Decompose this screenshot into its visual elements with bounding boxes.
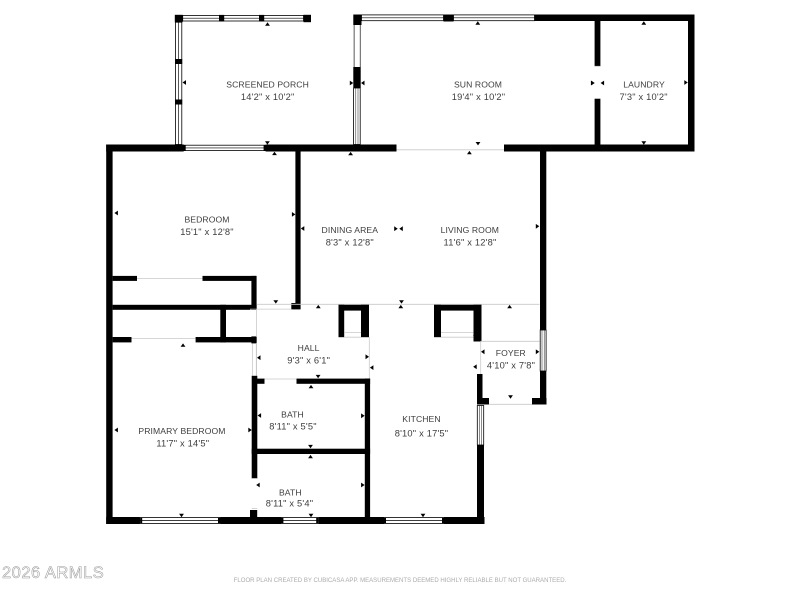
svg-text:BEDROOM: BEDROOM <box>184 214 229 224</box>
svg-text:8'10" x 17'5": 8'10" x 17'5" <box>395 428 449 438</box>
svg-text:14'2" x 10'2": 14'2" x 10'2" <box>241 92 295 102</box>
svg-text:LIVING ROOM: LIVING ROOM <box>441 225 499 235</box>
svg-text:11'7" x 14'5": 11'7" x 14'5" <box>156 438 209 448</box>
svg-text:FLOOR PLAN CREATED BY CUBICASA: FLOOR PLAN CREATED BY CUBICASA APP. MEAS… <box>234 578 567 584</box>
svg-text:KITCHEN: KITCHEN <box>402 414 440 424</box>
svg-text:FOYER: FOYER <box>496 348 526 358</box>
svg-text:2026 ARMLS: 2026 ARMLS <box>2 564 104 582</box>
svg-text:PRIMARY BEDROOM: PRIMARY BEDROOM <box>138 426 225 436</box>
svg-text:BATH: BATH <box>281 409 304 419</box>
svg-text:15'1" x 12'8": 15'1" x 12'8" <box>180 227 234 237</box>
svg-text:8'11" x 5'4": 8'11" x 5'4" <box>266 499 314 509</box>
svg-text:9'3" x 6'1": 9'3" x 6'1" <box>287 356 330 366</box>
svg-text:HALL: HALL <box>298 343 320 353</box>
svg-text:BATH: BATH <box>279 487 302 497</box>
svg-text:DINING AREA: DINING AREA <box>322 225 379 235</box>
svg-text:7'3" x 10'2": 7'3" x 10'2" <box>619 92 667 102</box>
svg-text:LAUNDRY: LAUNDRY <box>623 79 665 89</box>
svg-text:8'11" x 5'5": 8'11" x 5'5" <box>269 421 317 431</box>
svg-text:19'4" x 10'2": 19'4" x 10'2" <box>452 92 506 102</box>
svg-text:SUN ROOM: SUN ROOM <box>454 80 502 90</box>
svg-text:SCREENED PORCH: SCREENED PORCH <box>226 80 309 90</box>
svg-text:4'10" x 7'8": 4'10" x 7'8" <box>487 361 535 371</box>
svg-text:11'6" x 12'8": 11'6" x 12'8" <box>444 237 497 247</box>
svg-text:8'3" x 12'8": 8'3" x 12'8" <box>326 237 374 247</box>
